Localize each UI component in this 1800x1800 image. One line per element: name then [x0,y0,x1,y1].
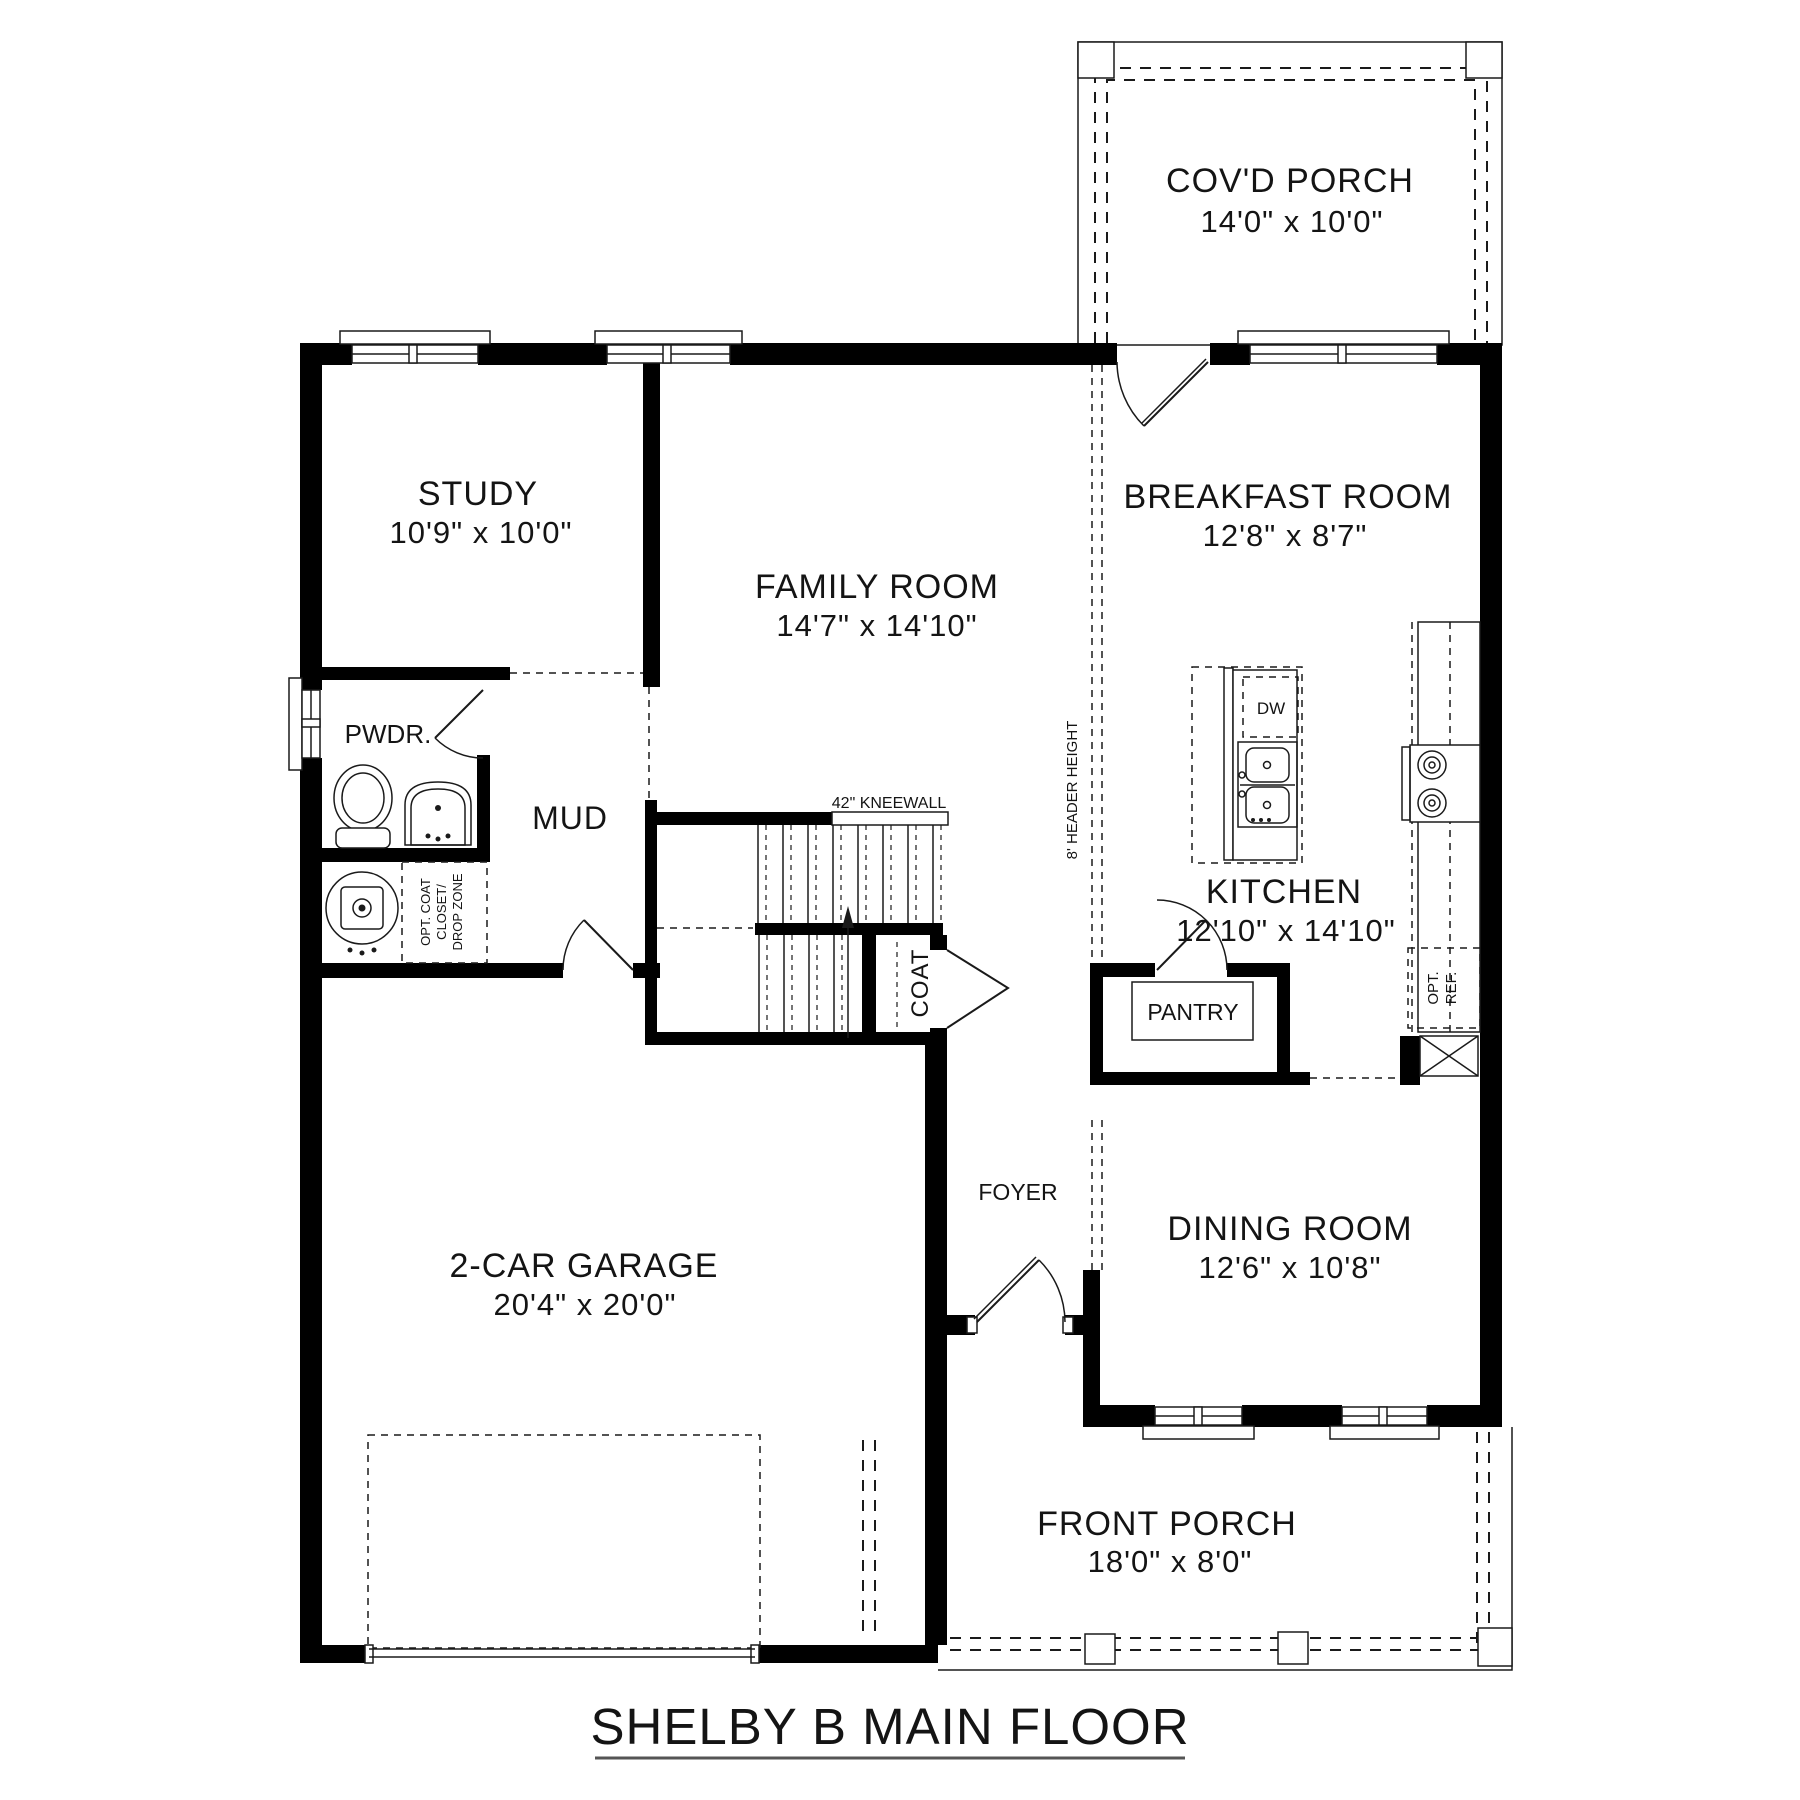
mud-label: MUD [532,800,608,836]
covd-porch-dims: 14'0" x 10'0" [1200,204,1383,239]
garage-mud-door [563,920,633,970]
floor-plan-svg: COV'D PORCH 14'0" x 10'0" STUDY 10'9" x … [0,0,1800,1800]
coat-label: COAT [907,949,934,1018]
breakfast-porch-door [1117,359,1208,426]
breakfast-label: BREAKFAST ROOM [1124,478,1453,516]
kneewall [832,812,948,825]
garage-dims: 20'4" x 20'0" [493,1287,676,1322]
coat-door-jamb [930,1028,947,1045]
family-room-dims: 14'7" x 14'10" [776,608,977,643]
opt-coat-label-1: OPT. COAT [418,878,433,946]
stair-north-wall [657,812,832,825]
mud-south-wall [300,963,563,978]
cabinet-wall-stub [1400,1036,1420,1085]
porch-post-icon [1078,42,1114,78]
garage-features [365,1435,760,1663]
family-room-label: FAMILY ROOM [755,568,999,606]
pantry-north-wall [1090,963,1155,977]
doors [435,359,1227,1333]
coat-west-wall [862,935,876,1032]
header-height-label: 8' HEADER HEIGHT [1064,721,1081,860]
porch-post-icon [1466,42,1502,78]
foyer-east-wall [1083,1270,1100,1405]
wall-segment [1480,343,1502,1427]
pantry-label: PANTRY [1147,999,1238,1025]
wall-segment [300,1645,369,1663]
coat-door-jamb [930,935,947,950]
study-label: STUDY [418,475,538,513]
kitchen-dims: 12'10" x 14'10" [1176,913,1396,948]
toilet-icon [334,765,392,848]
stair-treads-upper [758,825,941,923]
kitchen-label: KITCHEN [1206,873,1362,911]
front-porch-dashed-right [1477,1432,1489,1645]
wall-segment [1242,1405,1342,1427]
wall-segment [478,343,607,365]
wall-segment [730,343,1117,365]
wall-segment [300,343,322,690]
foyer-label: FOYER [978,1179,1057,1205]
breakfast-dims: 12'8" x 8'7" [1203,518,1368,553]
front-door [967,1257,1073,1333]
opt-ref-label-1: OPT. [1425,971,1442,1004]
porch-post-icon [1085,1634,1115,1664]
powder-east-wall [477,755,490,862]
wall-segment [1083,1405,1155,1427]
wall-segment [300,758,322,1663]
dining-window [1143,1407,1254,1439]
wall-segment [1427,1405,1502,1427]
family-room-window [595,331,742,363]
labels: COV'D PORCH 14'0" x 10'0" STUDY 10'9" x … [345,162,1460,1579]
powder-label: PWDR. [345,719,432,749]
garage-pad-dashed [368,1435,760,1648]
study-window [340,331,490,363]
water-heater-icon [326,872,398,956]
foyer-dining-opening-dashed [1092,1120,1102,1270]
garage-slab-dashed-edge [863,1440,875,1638]
stair-direction-arrow [842,906,854,1038]
opt-coat-label-3: DROP ZONE [450,873,465,950]
stair-treads-lower [759,935,842,1032]
plan-title-text: SHELBY B MAIN FLOOR [590,1698,1189,1755]
breakfast-window [1238,331,1449,363]
base-cabinet-icon [1420,1036,1478,1076]
pantry-south-wall [1090,1072,1310,1085]
opt-coat-label-2: CLOSET/ [434,884,449,940]
pantry-west-wall [1090,963,1103,1085]
study-east-wall [643,343,660,687]
powder-door [435,690,483,758]
study-south-wall [300,667,510,680]
front-porch-label: FRONT PORCH [1037,1505,1297,1543]
opt-ref-label-2: REF. [1443,972,1460,1005]
covd-porch-label: COV'D PORCH [1166,162,1414,200]
stair-south-wall [645,1032,947,1045]
wall-segment [755,1645,938,1663]
plan-title: SHELBY B MAIN FLOOR [590,1698,1189,1758]
kitchen-island [1192,667,1302,863]
header-opening-dashed [1092,365,1102,963]
stair-west-wall [645,800,657,1045]
dining-window [1330,1407,1439,1439]
powder-south-wall [300,848,490,862]
study-dims: 10'9" x 10'0" [389,515,572,550]
dishwasher-label: DW [1257,699,1285,718]
garage-label: 2-CAR GARAGE [450,1247,719,1285]
dining-dims: 12'6" x 10'8" [1198,1250,1381,1285]
floor-plan-page: COV'D PORCH 14'0" x 10'0" STUDY 10'9" x … [0,0,1800,1800]
powder-window [289,678,320,770]
kitchen-counter-right [1402,622,1480,1076]
powder-room-fixtures [334,765,471,848]
porch-post-icon [1278,1632,1308,1664]
pantry-east-wall [1277,963,1290,1085]
kneewall-label: 42" KNEEWALL [832,795,947,812]
range-icon [1402,745,1480,822]
porch-post-icon [1478,1628,1512,1666]
sink-icon [405,782,471,845]
front-porch-dashed-bottom [950,1638,1495,1650]
coat-bifold-door [947,950,1008,1028]
garage-east-wall [925,1045,947,1645]
wall-segment [1210,343,1250,365]
dining-label: DINING ROOM [1167,1210,1412,1248]
front-porch-dims: 18'0" x 8'0" [1088,1544,1253,1579]
